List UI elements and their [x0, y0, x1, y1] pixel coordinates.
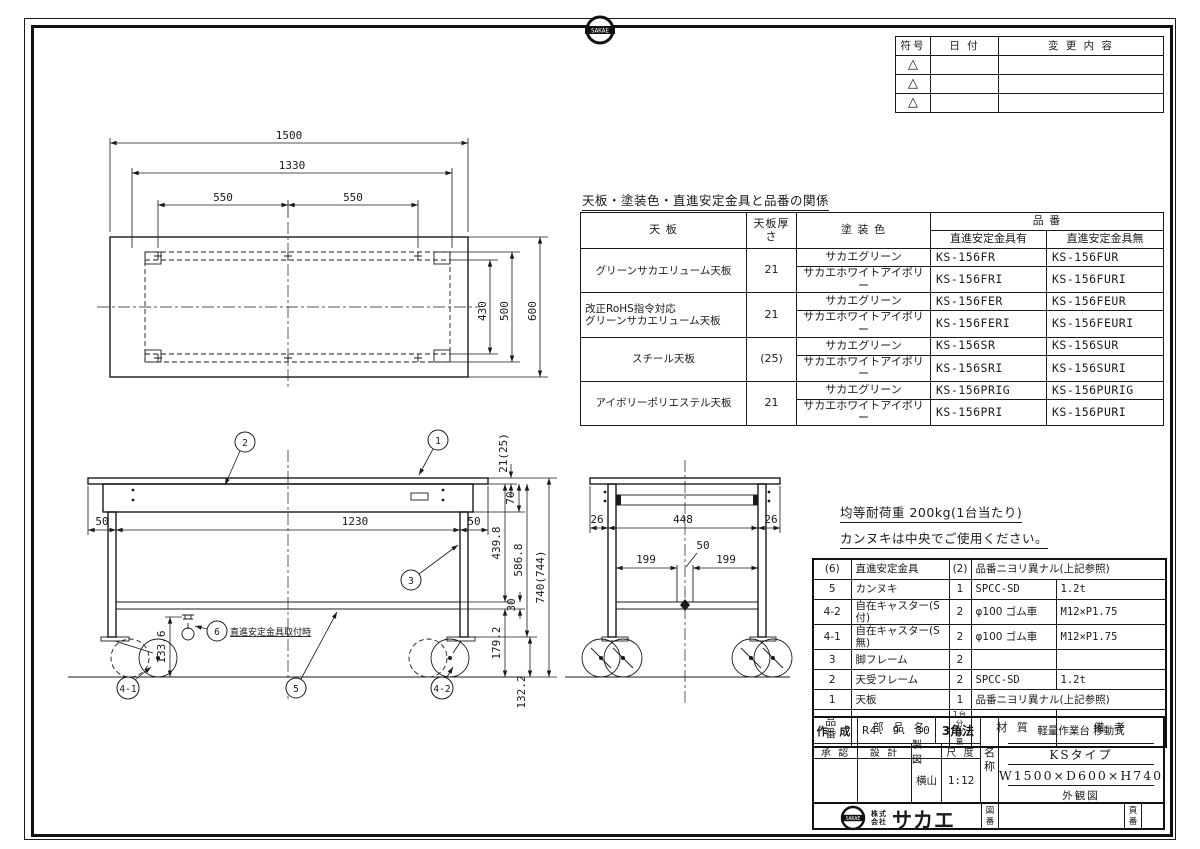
revision-h-change: 変 更 内 容	[999, 37, 1164, 56]
load-capacity-note: 均等耐荷重 200kg(1台当たり)	[840, 502, 1022, 523]
revision-triangle-icon: △	[896, 56, 931, 75]
dim-1500: 1500	[276, 129, 303, 142]
product-line: 軽量作業台 移動式	[999, 718, 1163, 743]
drawing-no-value	[999, 802, 1124, 830]
svg-text:4-1: 4-1	[119, 684, 136, 695]
revision-table: 符号 日 付 変 更 内 容 △ △ △	[895, 36, 1164, 113]
design-value	[858, 759, 912, 802]
dim-439-8: 439.8	[490, 526, 503, 559]
company-logo: SAKAE 株式会社 サカエ	[814, 802, 981, 832]
parts-row: 4-1 自在キャスター(S無) 2 φ100 ゴム車 M12×P1.75	[813, 625, 1166, 650]
dim-132-2: 132.2	[515, 675, 528, 708]
sakae-badge-top-icon: SAKAE	[580, 12, 620, 52]
draft-value: 横山	[912, 759, 942, 802]
notes: 均等耐荷重 200kg(1台当たり) カンヌキは中央でご使用ください。	[840, 502, 1048, 554]
revision-h-date: 日 付	[931, 37, 999, 56]
dim-740-744: 740(744)	[534, 551, 547, 604]
revision-row: △	[896, 75, 1164, 94]
projection-method: 3角法	[936, 718, 981, 744]
scale-label: 尺 度	[942, 744, 981, 759]
dim-50-left: 50	[95, 515, 108, 528]
dim-448: 448	[673, 513, 693, 526]
dim-586-8: 586.8	[512, 543, 525, 576]
cad-views: 1500 1330 550 550 430 500 600	[55, 115, 795, 715]
revision-triangle-icon: △	[896, 94, 931, 113]
design-label: 設 計	[858, 744, 912, 759]
parts-row: 3 脚フレーム 2	[813, 650, 1166, 670]
balloon-4-2: 4-2	[431, 677, 453, 699]
parts-row: 2 天受フレーム 2 SPCC-SD 1.2t	[813, 670, 1166, 690]
dim-500: 500	[498, 301, 511, 321]
company-prefix: 株式会社	[871, 810, 887, 827]
created-label: 作 成	[814, 718, 858, 744]
sakae-badge-bottom-icon: SAKAE	[840, 805, 866, 831]
side-view: 26 448 26 199 199 50	[565, 460, 792, 703]
approved-label: 承 認	[814, 744, 858, 759]
front-view: 50 1230 50 21(25) 70 439.8 586.8 740(744…	[68, 430, 557, 709]
name-label: 名称	[981, 718, 999, 802]
approved-value	[814, 759, 858, 802]
dim-26-left: 26	[590, 513, 603, 526]
page-no-label: 頁番	[1124, 802, 1142, 830]
title-block: 作 成 R4. 9. 30 3角法 承 認 設 計 製 図 尺 度 横山 1:1…	[812, 716, 1165, 830]
dim-199-left: 199	[636, 553, 656, 566]
dim-199-right: 199	[716, 553, 736, 566]
balloon-6: 6	[207, 621, 227, 641]
balloon-1: 1	[428, 430, 448, 450]
drawing-sheet: SAKAE 符号 日 付 変 更 内 容 △ △ △ 天板・塗装色・直進安定金具…	[0, 0, 1200, 849]
revision-triangle-icon: △	[896, 75, 931, 94]
revision-row: △	[896, 94, 1164, 113]
dim-26-right: 26	[764, 513, 777, 526]
svg-text:6: 6	[214, 627, 220, 638]
draft-label: 製 図	[912, 744, 942, 759]
dim-1230: 1230	[342, 515, 369, 528]
dim-430: 430	[476, 301, 489, 321]
svg-text:SAKAE: SAKAE	[591, 28, 609, 35]
parts-row: 4-2 自在キャスター(S付) 2 φ100 ゴム車 M12×P1.75	[813, 600, 1166, 625]
parts-row: 1 天板 1 品番ニヨリ異ナル(上記参照)	[813, 690, 1166, 710]
dim-21-25: 21(25)	[497, 433, 510, 473]
product-line: KSタイプ	[999, 744, 1163, 764]
kannuki-note: カンヌキは中央でご使用ください。	[840, 528, 1048, 549]
product-name-area: 軽量作業台 移動式 KSタイプ W1500×D600×H740 外観図	[999, 718, 1163, 802]
company-name: サカエ	[892, 803, 955, 833]
svg-text:5: 5	[293, 684, 299, 695]
revision-header-row: 符号 日 付 変 更 内 容	[896, 37, 1164, 56]
dim-50-right: 50	[467, 515, 480, 528]
top-view: 1500 1330 550 550 430 500 600	[97, 129, 548, 387]
drawing-no-label: 図番	[981, 802, 999, 830]
balloon-2: 2	[235, 432, 255, 452]
dim-30: 30	[505, 598, 518, 611]
dim-1330: 1330	[279, 159, 306, 172]
svg-text:2: 2	[242, 438, 248, 449]
balloon-4-1: 4-1	[117, 677, 139, 699]
svg-text:SAKAE: SAKAE	[846, 816, 861, 822]
parts-row: (6) 直進安定金具 (2) 品番ニヨリ異ナル(上記参照)	[813, 559, 1166, 580]
product-line: W1500×D600×H740	[999, 765, 1163, 785]
svg-text:3: 3	[408, 576, 414, 587]
svg-text:1: 1	[435, 436, 441, 447]
dim-600: 600	[526, 301, 539, 321]
balloon-3: 3	[401, 570, 421, 590]
dim-179-2: 179.2	[490, 626, 503, 659]
parts-row: 5 カンヌキ 1 SPCC-SD 1.2t	[813, 580, 1166, 600]
dim-550-left: 550	[213, 191, 233, 204]
svg-text:4-2: 4-2	[433, 684, 450, 695]
stabilizer-note: 直進安定金具取付時	[230, 626, 311, 638]
page-no-value	[1142, 802, 1163, 830]
dim-133-6: 133.6	[155, 630, 168, 663]
dim-550-right: 550	[343, 191, 363, 204]
revision-row: △	[896, 56, 1164, 75]
scale-value: 1:12	[942, 759, 981, 802]
balloon-5: 5	[286, 678, 306, 698]
dim-70: 70	[504, 491, 517, 504]
dim-50-slot: 50	[696, 539, 709, 552]
revision-h-symbol: 符号	[896, 37, 931, 56]
